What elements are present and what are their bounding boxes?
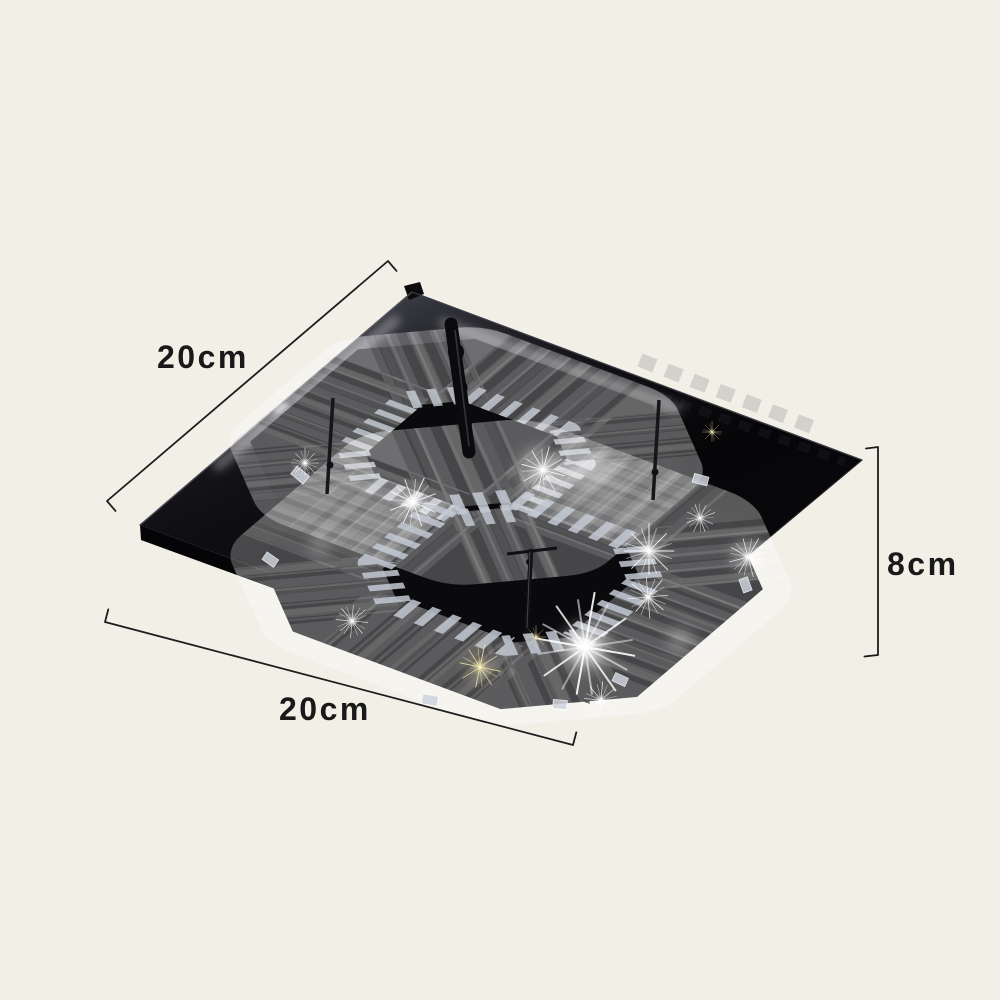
dimension-label-bottom: 20cm — [279, 693, 371, 725]
product-dimension-figure: 20cm 20cm 8cm — [0, 0, 1000, 1000]
lamp-illustration — [0, 0, 1000, 1000]
dimension-line-right — [865, 447, 879, 657]
dimension-label-right: 8cm — [887, 548, 959, 580]
dimension-label-top-left: 20cm — [157, 341, 249, 373]
